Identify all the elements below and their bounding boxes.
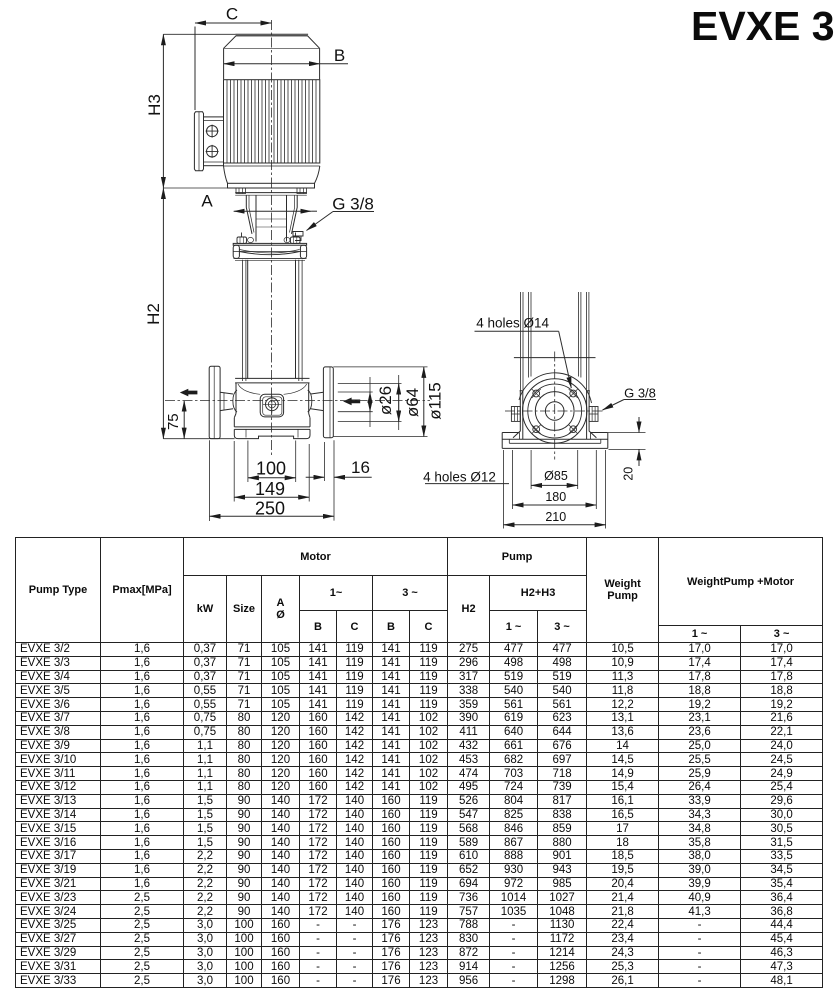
svg-text:H3: H3 (145, 94, 164, 116)
svg-text:ø64: ø64 (403, 388, 422, 417)
svg-text:G 3/8: G 3/8 (332, 195, 374, 214)
svg-text:149: 149 (255, 479, 285, 499)
svg-text:G 3/8: G 3/8 (624, 386, 656, 401)
svg-text:4 holes Ø12: 4 holes Ø12 (423, 470, 496, 485)
svg-text:B: B (334, 46, 345, 65)
svg-text:20: 20 (622, 467, 636, 481)
svg-text:250: 250 (255, 499, 285, 519)
svg-text:75: 75 (165, 413, 182, 430)
svg-text:16: 16 (351, 458, 370, 477)
svg-text:A: A (201, 192, 213, 211)
svg-text:ø115: ø115 (426, 382, 445, 420)
svg-text:100: 100 (256, 459, 286, 479)
svg-text:180: 180 (545, 490, 566, 504)
svg-text:C: C (226, 5, 238, 24)
svg-text:210: 210 (545, 510, 566, 524)
svg-text:Ø85: Ø85 (544, 469, 568, 483)
svg-text:H2: H2 (144, 303, 163, 325)
svg-text:4 holes Ø14: 4 holes Ø14 (476, 316, 549, 331)
svg-text:ø26: ø26 (376, 386, 395, 415)
